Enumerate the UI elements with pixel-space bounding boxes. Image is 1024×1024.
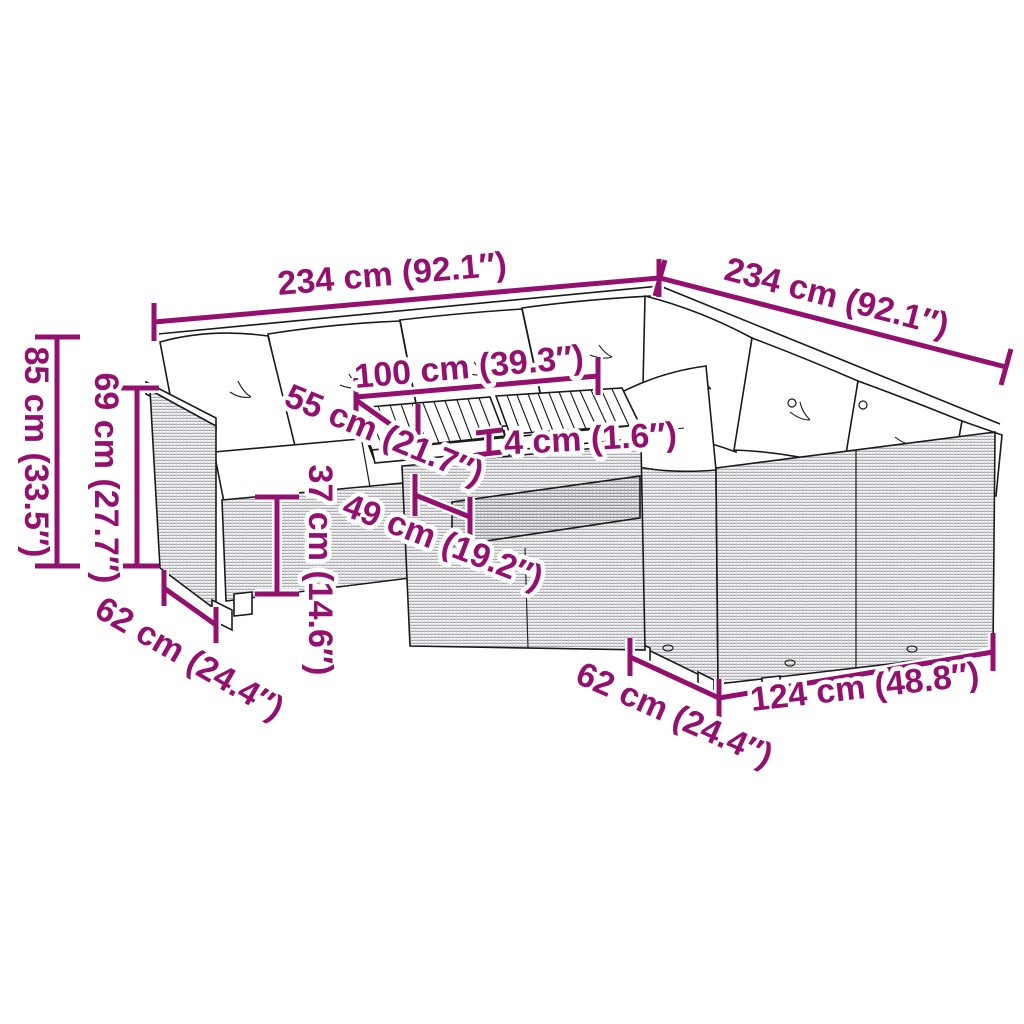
dimension-diagram: 234 cm (92.1″) 234 cm (92.1″) 100 cm (39…: [0, 0, 1024, 1024]
dim-label-total-height: 85 cm (33.5″): [17, 347, 55, 558]
diagram-canvas: 234 cm (92.1″) 234 cm (92.1″) 100 cm (39…: [0, 0, 1024, 1024]
dim-label-backrest-height: 69 cm (27.7″): [87, 373, 125, 584]
dim-label-width-right: 234 cm (92.1″): [721, 250, 953, 344]
dim-label-seat-height: 37 cm (14.6″): [301, 465, 339, 676]
sofa-foot: [234, 592, 252, 616]
